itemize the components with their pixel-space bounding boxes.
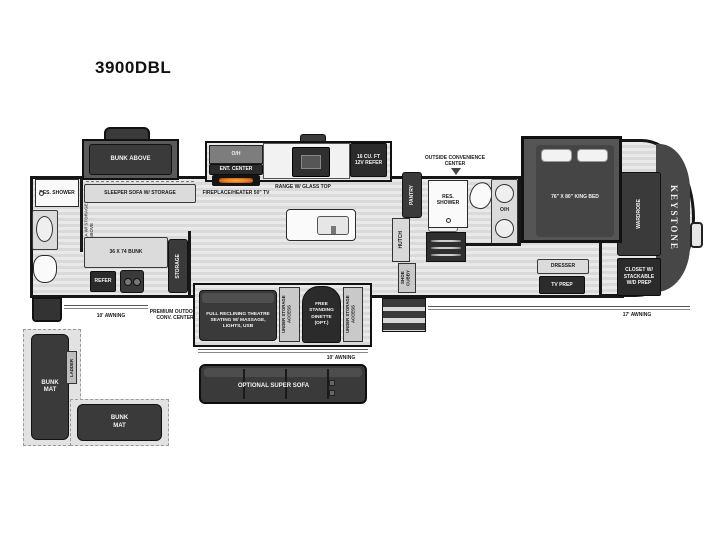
bath-oh-label: O/H: [494, 207, 515, 213]
theater-seating: FULL RECLINING THEATRE SEATING W/ MASSAG…: [199, 290, 277, 341]
dinette-label: FREE STANDING DINETTE (OPT.): [306, 302, 338, 327]
storage-label: STORAGE: [175, 254, 182, 279]
awning-mid-label: 10' AWNING: [318, 355, 364, 361]
bunk-above-slide: BUNK ABOVE: [82, 139, 179, 180]
flame-icon: [219, 178, 253, 183]
refer-small-label: REFER: [95, 278, 112, 285]
refrigerator: 16 CU. FT 12V REFER: [350, 143, 387, 177]
ladder-label: LADDER: [69, 359, 74, 377]
closet-stackable: CLOSET W/ STACKABLE W/D PREP: [617, 258, 661, 296]
theater-label: FULL RECLINING THEATRE SEATING W/ MASSAG…: [203, 305, 273, 337]
super-sofa: OPTIONAL SUPER SOFA: [199, 364, 367, 404]
awning-right-label: 17' AWNING: [614, 312, 660, 318]
range-icon: [292, 147, 330, 177]
outside-conv-marker-icon: [451, 168, 461, 175]
awning-line-mid: [198, 349, 368, 353]
kitchen-overhead: O/H: [209, 145, 263, 164]
bunk-mat-2-label: BUNK MAT: [105, 415, 135, 430]
under-storage-right-label: UNDER STORAGE ACCESS: [345, 288, 361, 341]
pillow-icon: [541, 149, 572, 162]
awning-left-label: 10' AWNING: [88, 313, 134, 319]
refer-small: REFER: [90, 271, 116, 292]
stair-step: [431, 247, 461, 249]
ent-center: ENT. CENTER: [209, 164, 263, 175]
bunk-mat-horizontal: BUNK MAT: [77, 404, 162, 441]
bath-bottom-wall: [466, 243, 521, 246]
fireplace-label: FIREPLACE/HEATER 50" TV: [200, 190, 272, 196]
step-icon: [383, 299, 425, 307]
fireplace: [212, 175, 260, 186]
bunkroom-wall: [188, 231, 191, 297]
floorplan-title: 3900DBL: [95, 58, 171, 78]
shoe-cubby-label: SHOE CUBBY: [400, 264, 414, 292]
wardrobe-cabinet: WARDROBE: [617, 172, 661, 256]
stair-step: [431, 254, 461, 256]
sleeper-sofa-label: SLEEPER SOFA W/ STORAGE: [104, 190, 176, 196]
step-icon: [383, 311, 425, 318]
storage-cabinet: STORAGE: [168, 239, 188, 293]
faucet-icon: [331, 226, 336, 234]
rear-sink-icon: [36, 216, 53, 242]
oh-label: O/H: [232, 151, 241, 158]
pantry-cabinet: PANTRY: [402, 172, 422, 218]
shower-drain-icon: [446, 218, 451, 223]
sleeper-sofa: SLEEPER SOFA W/ STORAGE: [84, 184, 196, 203]
bunk-label: 36 X 74 BUNK: [109, 249, 142, 255]
under-storage-access-left: UNDER STORAGE ACCESS: [279, 287, 300, 342]
interior-stairs: [426, 232, 466, 262]
entry-steps: [382, 298, 426, 332]
loft-ladder: LADDER: [66, 351, 77, 384]
under-storage-access-right: UNDER STORAGE ACCESS: [343, 287, 363, 342]
main-shower-label: RES. SHOWER: [431, 189, 465, 211]
rear-shower: RES. SHOWER: [35, 179, 79, 207]
dresser-label: DRESSER: [551, 263, 575, 269]
outdoor-kitchen-unit: [120, 270, 144, 293]
dinette: FREE STANDING DINETTE (OPT.): [302, 286, 341, 343]
vanity-sink-icon: [495, 219, 514, 238]
under-storage-left-label: UNDER STORAGE ACCESS: [281, 288, 298, 341]
vanity-sink-icon: [495, 184, 514, 203]
cupholder-icon: [329, 380, 335, 386]
king-bed: 76" X 80" KING BED: [536, 145, 614, 237]
range-glass-icon: [301, 155, 321, 169]
step-icon: [383, 323, 425, 330]
front-cap-nose: KEYSTONE: [656, 144, 690, 292]
cupholder-icon: [329, 390, 335, 396]
hutch-label: HUTCH: [398, 231, 404, 249]
pantry-label: PANTRY: [409, 185, 416, 205]
ent-center-label: ENT. CENTER: [220, 166, 253, 173]
bunk-mat-vertical: BUNK MAT: [31, 334, 69, 440]
rear-toilet-icon: [33, 255, 57, 283]
stair-step: [431, 240, 461, 242]
range-label: RANGE W/ GLASS TOP: [272, 184, 334, 190]
bunk-bed: 36 X 74 BUNK: [84, 237, 168, 268]
king-bed-label: 76" X 80" KING BED: [544, 187, 606, 207]
brand-logo: KEYSTONE: [666, 152, 682, 284]
wardrobe-label: WARDROBE: [636, 199, 643, 229]
rear-steps: [32, 297, 62, 322]
awning-line-right: [428, 306, 690, 310]
refrigerator-label: 16 CU. FT 12V REFER: [353, 154, 385, 167]
burner-icon: [133, 278, 141, 286]
island-sink-icon: [317, 216, 349, 235]
shower-drain-icon: [39, 191, 44, 196]
bunk-above-label: BUNK ABOVE: [110, 156, 150, 164]
hutch-cabinet: HUTCH: [392, 218, 410, 262]
bunk-mat-1-label: BUNK MAT: [37, 380, 63, 395]
kitchen-island: [286, 209, 356, 241]
bunk-above-bed: BUNK ABOVE: [89, 144, 172, 175]
closet-label: CLOSET W/ STACKABLE W/D PREP: [619, 267, 659, 287]
dresser: DRESSER: [537, 259, 589, 274]
outside-conv-label: OUTSIDE CONVENIENCE CENTER: [424, 155, 486, 168]
hitch-handle: [690, 222, 703, 248]
main-shower: RES. SHOWER: [428, 180, 468, 228]
tv-prep: TV PREP: [539, 276, 585, 294]
pillow-icon: [577, 149, 608, 162]
floorplan-canvas: 3900DBL KEYSTONE WARDROBE CLOSET W/ STAC…: [0, 0, 720, 540]
super-sofa-label: OPTIONAL SUPER SOFA: [221, 379, 326, 395]
sofa-back-band: [204, 368, 362, 377]
headrest-band: [202, 293, 274, 303]
shoe-cubby: SHOE CUBBY: [398, 263, 416, 293]
bed-slide: 76" X 80" KING BED: [521, 136, 622, 243]
tv-prep-label: TV PREP: [551, 282, 572, 289]
awning-line-left: [64, 305, 148, 309]
burner-icon: [124, 278, 132, 286]
slide-travel-dash: [86, 181, 194, 182]
